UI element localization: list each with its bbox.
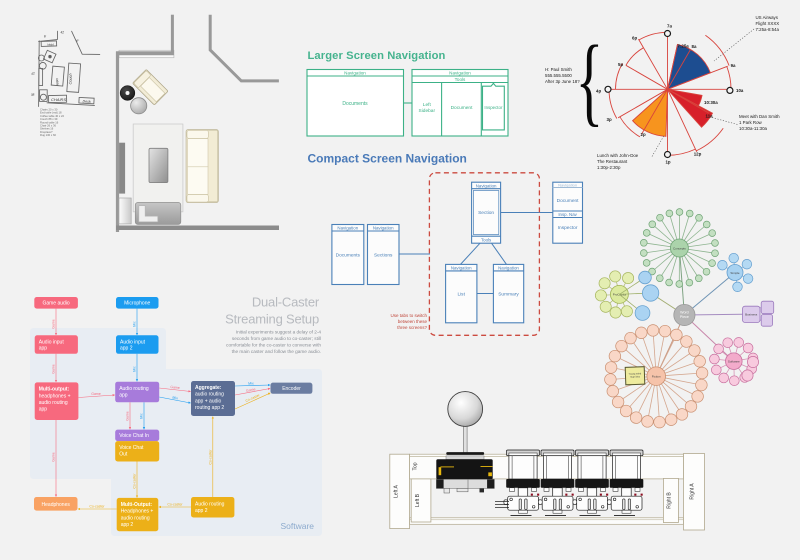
svg-text:Voice Chat: Voice Chat bbox=[119, 445, 144, 451]
svg-text:Word: Word bbox=[680, 311, 689, 315]
svg-text:Mic: Mic bbox=[133, 366, 137, 372]
svg-text:map idea: map idea bbox=[630, 375, 641, 378]
svg-text:Use tabs to switch: Use tabs to switch bbox=[390, 313, 427, 318]
svg-text:three screens?: three screens? bbox=[397, 325, 427, 330]
svg-text:Headphones: Headphones bbox=[42, 502, 71, 508]
svg-text:H: Paul Smith: H: Paul Smith bbox=[545, 67, 572, 72]
svg-text:Left: Left bbox=[423, 102, 432, 108]
svg-text:7:25a: 7:25a bbox=[678, 44, 690, 49]
svg-text:the main caster and follow the: the main caster and follow the game audi… bbox=[232, 349, 321, 354]
svg-text:6': 6' bbox=[76, 38, 80, 43]
svg-text:Headphones +: Headphones + bbox=[121, 509, 154, 515]
svg-text:app + audio: app + audio bbox=[195, 398, 221, 404]
svg-text:Documents: Documents bbox=[336, 253, 361, 259]
svg-text:6p: 6p bbox=[632, 36, 637, 41]
svg-text:Inspector: Inspector bbox=[484, 105, 503, 110]
svg-text:Co-caster: Co-caster bbox=[167, 503, 183, 507]
svg-text:app: app bbox=[119, 393, 128, 399]
svg-text:List: List bbox=[457, 292, 465, 298]
svg-text:11a: 11a bbox=[706, 113, 714, 118]
svg-text:Couch: Couch bbox=[69, 73, 73, 84]
svg-text:42: 42 bbox=[31, 71, 36, 76]
svg-text:Fiction: Fiction bbox=[652, 375, 661, 379]
svg-text:Navigation: Navigation bbox=[498, 266, 519, 271]
svg-text:Left B: Left B bbox=[415, 493, 421, 507]
svg-text:2p: 2p bbox=[641, 132, 646, 137]
svg-text:Game: Game bbox=[52, 452, 56, 462]
svg-text:Navigation: Navigation bbox=[451, 266, 472, 271]
svg-text:Meet with Dan Smith: Meet with Dan Smith bbox=[739, 114, 780, 119]
svg-text:{: { bbox=[576, 24, 604, 135]
svg-text:between these: between these bbox=[398, 319, 428, 324]
svg-text:Mic: Mic bbox=[140, 413, 144, 419]
svg-text:Co-caster: Co-caster bbox=[89, 505, 105, 509]
svg-text:Concepts: Concepts bbox=[673, 246, 686, 250]
svg-text:Voice Chat In: Voice Chat In bbox=[119, 433, 149, 439]
svg-text:Software: Software bbox=[728, 360, 740, 364]
svg-text:Lunch with John-Doe: Lunch with John-Doe bbox=[597, 153, 639, 158]
svg-text:Tools: Tools bbox=[481, 238, 492, 243]
svg-text:10a: 10a bbox=[736, 88, 744, 93]
svg-text:Audio routing: Audio routing bbox=[195, 501, 225, 507]
svg-text:7:25a-8:54a: 7:25a-8:54a bbox=[756, 27, 780, 32]
svg-text:3p: 3p bbox=[607, 117, 612, 122]
svg-text:Business: Business bbox=[745, 313, 758, 317]
svg-text:Audio input: Audio input bbox=[39, 339, 65, 345]
svg-text:Tools: Tools bbox=[455, 77, 466, 82]
svg-text:Dual-Caster: Dual-Caster bbox=[252, 295, 320, 310]
svg-text:Compact Screen Navigation: Compact Screen Navigation bbox=[308, 152, 467, 166]
svg-text:6': 6' bbox=[43, 34, 46, 38]
svg-text:Encoder: Encoder bbox=[282, 386, 301, 392]
svg-text:app 2: app 2 bbox=[195, 508, 208, 514]
svg-text:Piece: Piece bbox=[680, 315, 689, 319]
svg-text:The Restaurant: The Restaurant bbox=[597, 159, 628, 164]
svg-text:Documents: Documents bbox=[342, 101, 368, 107]
svg-text:app 2: app 2 bbox=[120, 346, 133, 352]
svg-text:Document: Document bbox=[451, 105, 474, 111]
svg-text:38: 38 bbox=[30, 92, 34, 97]
svg-text:Navigation: Navigation bbox=[449, 71, 471, 76]
svg-text:12p: 12p bbox=[694, 152, 702, 157]
svg-text:app: app bbox=[39, 346, 48, 352]
svg-text:Audio input: Audio input bbox=[120, 339, 146, 345]
svg-text:Microphone: Microphone bbox=[124, 301, 150, 307]
svg-text:Larger Screen Navigation: Larger Screen Navigation bbox=[308, 50, 446, 62]
svg-text:Mix: Mix bbox=[248, 381, 254, 385]
svg-text:7a: 7a bbox=[667, 24, 672, 29]
svg-text:Mic: Mic bbox=[133, 321, 137, 327]
svg-text:Navigation: Navigation bbox=[344, 71, 366, 76]
svg-text:Desk: Desk bbox=[82, 99, 91, 103]
svg-text:Section: Section bbox=[478, 210, 494, 216]
svg-text:Aggregate:: Aggregate: bbox=[195, 385, 222, 391]
svg-text:Top: Top bbox=[413, 462, 419, 470]
svg-text:1:30p-2:30p: 1:30p-2:30p bbox=[597, 165, 621, 170]
svg-text:Navigation: Navigation bbox=[558, 182, 577, 187]
svg-text:Rug 130 x 60: Rug 130 x 60 bbox=[40, 133, 56, 137]
svg-text:Navigation: Navigation bbox=[337, 226, 358, 231]
svg-text:5p: 5p bbox=[618, 62, 623, 67]
svg-text:audio routing: audio routing bbox=[39, 400, 68, 406]
svg-text:Game: Game bbox=[52, 364, 56, 374]
svg-text:audio routing: audio routing bbox=[121, 515, 150, 521]
svg-text:bkshf: bkshf bbox=[48, 42, 54, 46]
svg-text:Right A: Right A bbox=[690, 483, 696, 500]
svg-text:Multi-Output:: Multi-Output: bbox=[121, 502, 153, 508]
svg-text:Summary: Summary bbox=[498, 292, 519, 298]
svg-text:headphones +: headphones + bbox=[39, 393, 71, 399]
svg-text:Game: Game bbox=[91, 392, 101, 396]
svg-text:9a: 9a bbox=[731, 63, 736, 68]
svg-text:10:30a: 10:30a bbox=[704, 100, 718, 105]
svg-text:Game audio: Game audio bbox=[42, 301, 69, 307]
svg-text:1 Park Row: 1 Park Row bbox=[739, 120, 763, 125]
svg-text:10:30a-11:30a: 10:30a-11:30a bbox=[739, 126, 768, 131]
svg-text:Navigation: Navigation bbox=[476, 183, 497, 188]
svg-text:Flight XXXX: Flight XXXX bbox=[756, 21, 780, 26]
svg-text:Right B: Right B bbox=[667, 492, 673, 509]
svg-text:Left A: Left A bbox=[394, 484, 400, 497]
svg-text:audio routing: audio routing bbox=[195, 392, 224, 398]
svg-text:US Airways: US Airways bbox=[756, 15, 779, 20]
svg-text:seconds from game audio to co-: seconds from game audio to co-caster; st… bbox=[232, 336, 321, 341]
svg-text:8a: 8a bbox=[692, 44, 697, 49]
svg-text:Simple: Simple bbox=[730, 271, 740, 275]
svg-text:After 3p June 18?: After 3p June 18? bbox=[545, 79, 580, 84]
svg-text:Game: Game bbox=[126, 411, 130, 421]
svg-text:CHAIRS: CHAIRS bbox=[51, 97, 66, 102]
svg-text:1p: 1p bbox=[665, 160, 670, 165]
svg-text:routing app 2: routing app 2 bbox=[195, 405, 224, 411]
svg-text:Sections: Sections bbox=[374, 253, 393, 259]
svg-text:Streaming Setup: Streaming Setup bbox=[225, 312, 319, 327]
svg-text:Software: Software bbox=[280, 521, 314, 531]
svg-text:Audio routing: Audio routing bbox=[119, 386, 149, 392]
svg-text:Co-caster: Co-caster bbox=[209, 449, 213, 465]
svg-text:table: table bbox=[55, 78, 60, 86]
svg-text:Co-caster: Co-caster bbox=[133, 473, 137, 489]
svg-text:Multi-output:: Multi-output: bbox=[39, 387, 70, 393]
svg-text:Navigation: Navigation bbox=[373, 226, 394, 231]
svg-text:555.555.5500: 555.555.5500 bbox=[545, 73, 572, 78]
svg-text:Sidebar: Sidebar bbox=[419, 108, 436, 114]
svg-text:app: app bbox=[39, 407, 48, 413]
svg-text:Out: Out bbox=[119, 452, 128, 458]
svg-text:Game: Game bbox=[52, 319, 56, 329]
svg-text:42: 42 bbox=[61, 31, 65, 35]
svg-text:app 2: app 2 bbox=[121, 522, 134, 528]
svg-text:Initial experiments suggest a: Initial experiments suggest a delay of 2… bbox=[236, 330, 322, 335]
svg-text:comfortable for the co-caster: comfortable for the co-caster to convers… bbox=[226, 343, 321, 348]
